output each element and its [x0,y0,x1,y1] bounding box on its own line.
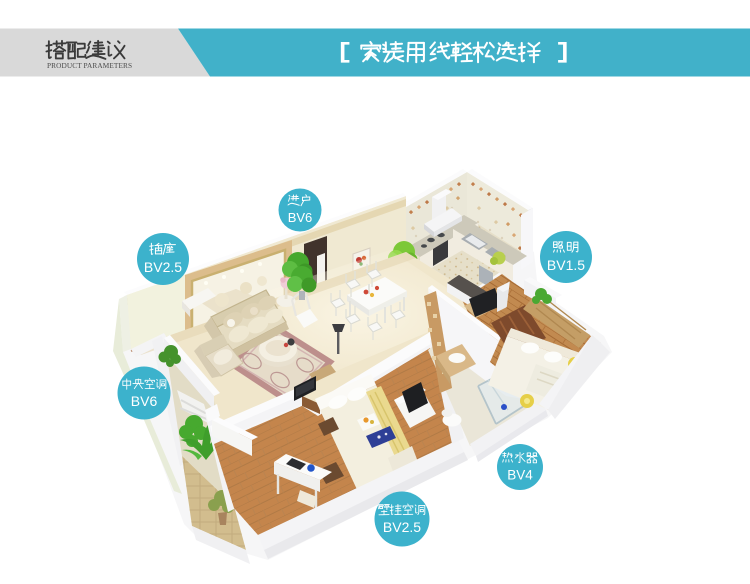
svg-text:PRODUCT PARAMETERS: PRODUCT PARAMETERS [47,61,132,70]
svg-text:BV2.5: BV2.5 [144,259,182,275]
svg-text:BV6: BV6 [131,393,158,409]
svg-text:BV6: BV6 [288,210,313,225]
svg-text:BV4: BV4 [507,468,533,483]
svg-text:BV2.5: BV2.5 [383,519,421,535]
svg-text:BV1.5: BV1.5 [547,257,585,273]
